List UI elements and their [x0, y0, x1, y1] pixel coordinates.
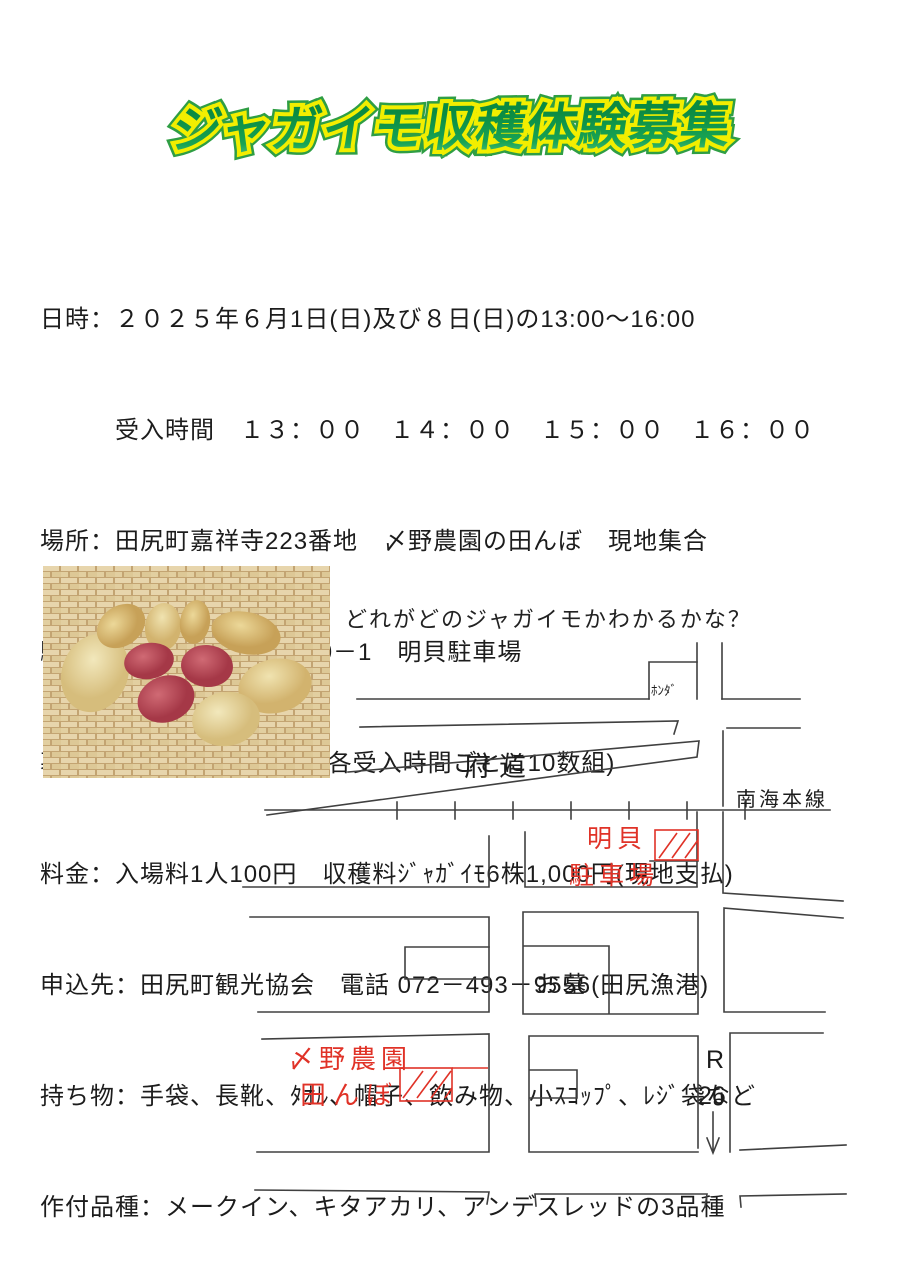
- flyer-page: { "title": "ジャガイモ収穫体験募集", "colors": { "t…: [0, 0, 905, 1280]
- grave-label: お墓: [536, 971, 590, 997]
- railway-label: 南海本線: [736, 788, 828, 811]
- prefectural-road-label: 府道: [464, 752, 534, 782]
- access-map: ﾎﾝﾀﾞ 府道 南海本線 明貝 駐車場 お墓 〆野農園 田んぼ R 26: [0, 0, 905, 1280]
- second-road: [360, 721, 678, 734]
- mid-vertical-road: [697, 812, 843, 901]
- bottom-road: [255, 1190, 846, 1207]
- grave-block: [523, 912, 698, 1014]
- farm-label-line1: 〆野農園: [288, 1044, 412, 1074]
- map-labels: ﾎﾝﾀﾞ 府道 南海本線 明貝 駐車場 お墓 〆野農園 田んぼ R 26: [288, 683, 828, 1110]
- block-row2-left: [250, 917, 489, 1012]
- route-26-arrow-icon: [707, 1112, 719, 1153]
- block-row2-right: [724, 908, 843, 1012]
- parking-label-line1: 明貝: [587, 825, 647, 853]
- map-road-lines: [243, 643, 846, 1207]
- block-row3-middle: [529, 1036, 698, 1152]
- parking-hatch: [655, 830, 698, 860]
- farm-hatch: [400, 1068, 488, 1101]
- route-number-label: 26: [698, 1082, 726, 1110]
- parking-label-line2: 駐車場: [569, 862, 659, 890]
- block-row3-right: [730, 1033, 846, 1152]
- top-vertical-road: [697, 643, 722, 699]
- block-row2-left-notch: [405, 947, 489, 979]
- farm-label-line2: 田んぼ: [300, 1080, 399, 1110]
- route-letter-label: R: [706, 1046, 724, 1074]
- honda-label: ﾎﾝﾀﾞ: [651, 683, 677, 698]
